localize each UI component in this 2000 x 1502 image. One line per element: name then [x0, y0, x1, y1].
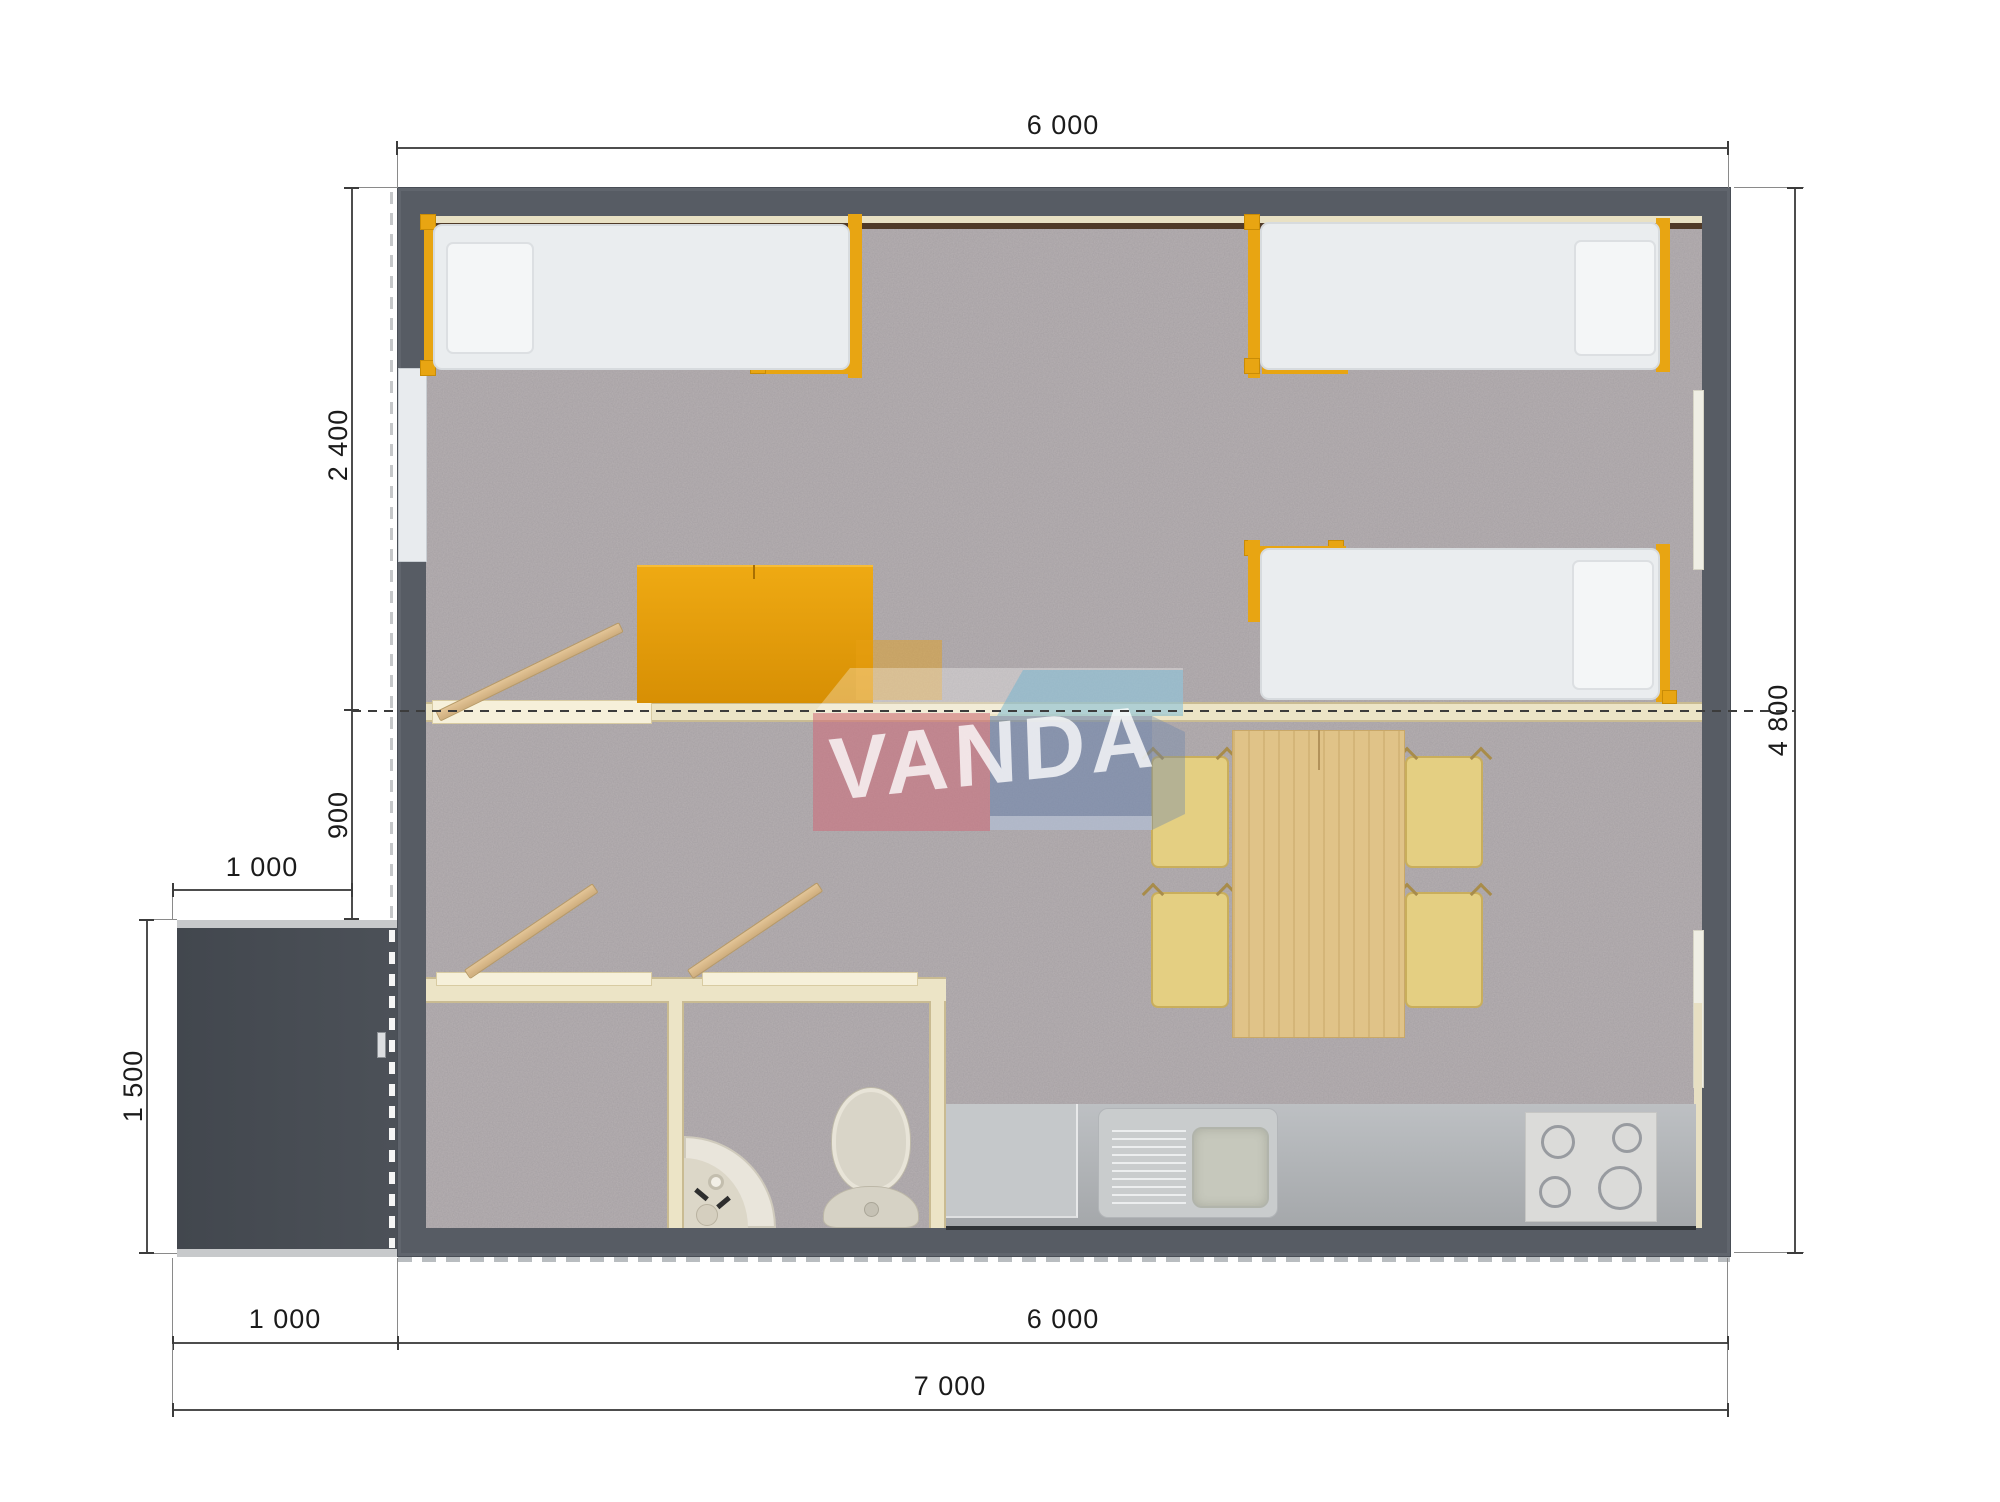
tick-left-a [344, 187, 359, 189]
tick-1500-a [139, 919, 154, 921]
bed2-post-b [1244, 358, 1260, 374]
tick-4800-b [1787, 1252, 1803, 1254]
dim-house-depth: 4 800 [1758, 660, 1798, 780]
faucet-icon [708, 1174, 724, 1190]
tick-top-a [396, 141, 398, 155]
bed3-post-c [1662, 690, 1677, 704]
tick-porch-a [172, 883, 174, 897]
dim-line-bottom2 [173, 1409, 1729, 1411]
kitchen-sink-drainboard [1112, 1130, 1186, 1208]
dim-hallway-depth: 900 [318, 770, 358, 860]
porch [177, 920, 397, 1257]
kitchen-sink-basin [1192, 1127, 1269, 1208]
entry-door-handle-icon [377, 1032, 386, 1058]
dim-line-bottom1 [173, 1342, 1729, 1344]
right-wall-window-upper [1693, 390, 1704, 570]
partition-centerline [352, 710, 1795, 712]
bathroom-divider-wall [667, 1001, 684, 1228]
burner-top-right-icon [1612, 1123, 1642, 1153]
bed3-frame-left [1248, 540, 1260, 622]
entry-door [389, 930, 395, 1248]
bed3-pillow [1572, 560, 1654, 690]
ext-b2-left [172, 1344, 173, 1410]
dim-bedroom-depth: 2 400 [318, 400, 358, 490]
dim-porch-depth: 1 500 [113, 1036, 153, 1136]
burner-top-left-icon [1541, 1125, 1575, 1159]
porch-bottom-step [177, 1249, 397, 1257]
dining-table [1232, 730, 1405, 1038]
toilet-button-icon [864, 1202, 879, 1217]
dim-house-width-bottom: 6 000 [1003, 1302, 1123, 1336]
dim-line-porch-width [173, 889, 352, 891]
tick-porch-b [351, 883, 353, 897]
dim-porch-width-bottom: 1 000 [225, 1302, 345, 1336]
ext-b2-right [1727, 1344, 1728, 1410]
roof-overhang-dash-left [390, 192, 393, 918]
kitchen-cabinet [946, 1104, 1078, 1218]
dim-total-width: 7 000 [890, 1369, 1010, 1403]
chair-bottom-left [1151, 892, 1229, 1008]
dim-house-width-top: 6 000 [1003, 108, 1123, 142]
left-wall-window [398, 368, 427, 562]
tick-b2-b [1727, 1403, 1729, 1417]
tick-top-b [1727, 141, 1729, 155]
floor-plan-canvas: VANDA 6 000 2 400 900 1 000 1 500 4 800 … [0, 0, 2000, 1502]
watermark-light-strip [990, 816, 1152, 830]
burner-bottom-left-icon [1539, 1176, 1571, 1208]
kitchen-counter-edge [946, 1226, 1696, 1230]
bed1-footboard [848, 214, 862, 378]
chair-bottom-right [1405, 892, 1483, 1008]
bed1-pillow [446, 242, 534, 354]
dim-line-top [398, 147, 1728, 149]
tick-1500-b [139, 1252, 154, 1254]
dim-porch-width: 1 000 [202, 850, 322, 884]
chair-top-right [1405, 756, 1483, 868]
bathroom-right-wall [929, 1001, 946, 1228]
dining-table-seam [1318, 730, 1320, 770]
bed2-frame-left [1248, 214, 1260, 378]
tick-b2-a [172, 1403, 174, 1417]
burner-bottom-right-icon [1598, 1166, 1642, 1210]
bed2-post-a [1244, 214, 1260, 230]
wardrobe [637, 565, 873, 703]
roof-overhang-dash-bottom [398, 1257, 1730, 1262]
porch-top-step [177, 920, 397, 928]
ext-b1-mid [397, 1258, 398, 1344]
tick-left-c [344, 918, 359, 920]
ext-b1-right [1727, 1258, 1728, 1344]
bed2-pillow [1574, 240, 1656, 356]
wc-door-opening [702, 972, 918, 986]
ext-porch-corner [172, 894, 173, 920]
tick-4800-a [1787, 187, 1803, 189]
bed1-frame-left [424, 218, 433, 376]
wardrobe-seam [753, 565, 755, 579]
basin-trap [696, 1204, 718, 1226]
tick-b1-b [397, 1336, 399, 1350]
ext-b1-left [172, 1258, 173, 1344]
toilet-lid [832, 1088, 910, 1192]
